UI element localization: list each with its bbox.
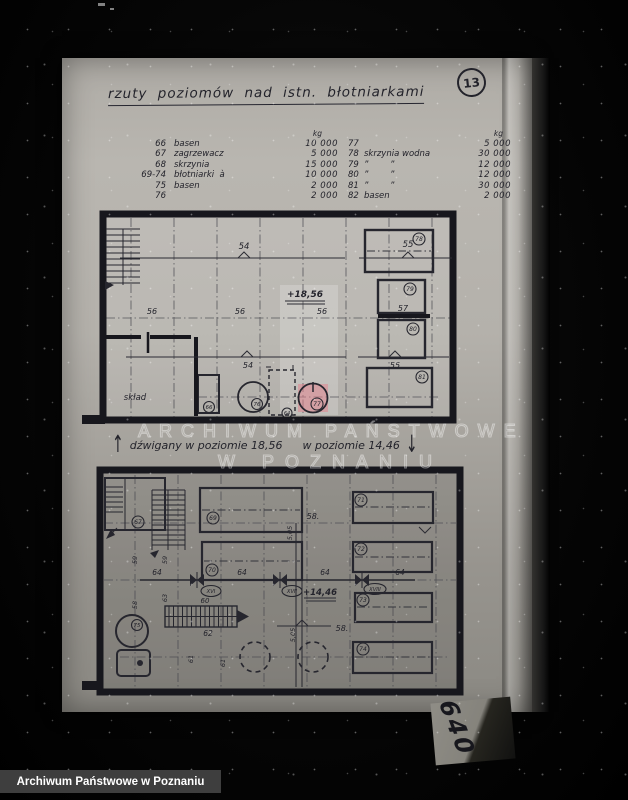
legend-row: 80” ”12 000 [348,170,511,180]
legend-row: 762 000 [122,191,338,201]
dim-54-label: 54 [239,242,250,252]
dim-55-label: 55 [403,240,414,250]
archive-name: Archiwum Państwowe w Poznaniu [17,776,205,788]
tank-74-label: 74 [359,646,367,653]
tank-81-label: 81 [418,374,426,381]
dim-58-label: 58 [131,601,139,609]
dim-58-label: 58. [336,624,349,633]
legend-table: kg 66basen10 000 67zagrzewacz5 000 68skr… [122,129,511,201]
legend-row: 79” ”12 000 [348,160,511,170]
dim-64-label: 64 [284,411,290,417]
legend-row: 82basen2 000 [348,191,511,201]
dim-56-label: 56 [235,307,245,316]
film-artifact [110,8,114,10]
room-label: skład [124,393,147,403]
elevation-label: +18,56 [287,290,323,300]
dim-63-label: 63 [161,594,169,602]
tank-69-label: 69 [209,515,217,522]
dim-60-label: 60 [201,597,210,605]
dim-61-label: 61 [187,655,195,663]
dim-64-label: 64 [237,568,247,577]
valve-tag: XVII [286,589,298,595]
unit-header: kg [348,129,511,139]
legend-row: 67zagrzewacz5 000 [122,149,338,159]
valve-tag: XVIII [368,587,381,593]
tank-72-label: 72 [357,546,365,553]
document-sheet: 13 rzuty poziomów nad istn. błotniarkami… [62,58,532,712]
dim-57-label: 57 [398,304,409,313]
legend-row: 68skrzynia15 000 [122,160,338,170]
unit-header: kg [122,129,338,139]
tank-71-label: 71 [357,497,365,504]
archive-watermark-line2: W POZNANIU [218,452,443,473]
tank-67-label: 67 [134,519,142,526]
sheet-edge-shadow [532,58,550,712]
page-number: 13 [462,75,480,91]
archival-photo: 13 rzuty poziomów nad istn. błotniarkami… [0,0,628,800]
legend-row: 69-74błotniarki à10 000 [122,170,338,180]
legend-column-left: kg 66basen10 000 67zagrzewacz5 000 68skr… [122,129,338,201]
legend-row: 775 000 [348,139,511,149]
dim-58-label: 58. [307,512,320,521]
legend-column-right: kg 775 000 78skrzynia wodna30 000 79” ”1… [348,129,511,201]
dim-505-label: 5,05 [286,526,294,540]
paper-scrap: 640 [430,697,515,766]
drawing-title: rzuty poziomów nad istn. błotniarkami [108,84,425,106]
archive-watermark-line1: ARCHIWUM PAŃSTWOWE [138,421,525,442]
film-artifact [98,3,105,6]
tank-73-label: 73 [359,597,367,604]
legend-row: 75basen2 000 [122,181,338,191]
dim-64-label: 64 [152,568,162,577]
dim-505-label: 5,05 [289,628,297,642]
legend-row: 66basen10 000 [122,139,338,149]
dim-62-label: 62 [203,629,213,638]
valve-tag: XVI [206,589,216,595]
tank-78-label: 78 [415,236,423,243]
elevation-label: +14,46 [303,588,337,598]
upper-floor-plan: 78 79 80 81 66 76 64 77 [78,205,468,435]
archive-footer: Archiwum Państwowe w Poznaniu [0,770,221,793]
dim-59-label: 59 [161,556,169,564]
tank-79-label: 79 [406,286,414,293]
dim-64-label: 64 [320,568,330,577]
dim-55-label: 55 [390,361,400,370]
up-arrow-icon: ↑ [112,431,124,458]
dim-56-label: 56 [147,307,157,316]
page-number-stamp: 13 [456,67,488,99]
dim-61-label: 61 [219,659,227,667]
dim-59-label: 59 [131,556,139,564]
lower-floor-plan: 67 69 70 71 [80,465,475,700]
dim-56-label: 56 [317,307,327,316]
scrap-note: 640 [433,697,481,759]
dim-64-label: 64 [395,568,405,577]
tank-66-label: 66 [206,405,213,411]
tank-75-label: 75 [134,623,141,629]
legend-row: 78skrzynia wodna30 000 [348,149,511,159]
tank-76-label: 76 [254,402,261,408]
tank-80-label: 80 [409,326,417,333]
tank-77-label: 77 [313,401,321,408]
dim-54-label: 54 [243,361,253,370]
legend-row: 81” ”30 000 [348,181,511,191]
tank-70-label: 70 [208,567,216,574]
